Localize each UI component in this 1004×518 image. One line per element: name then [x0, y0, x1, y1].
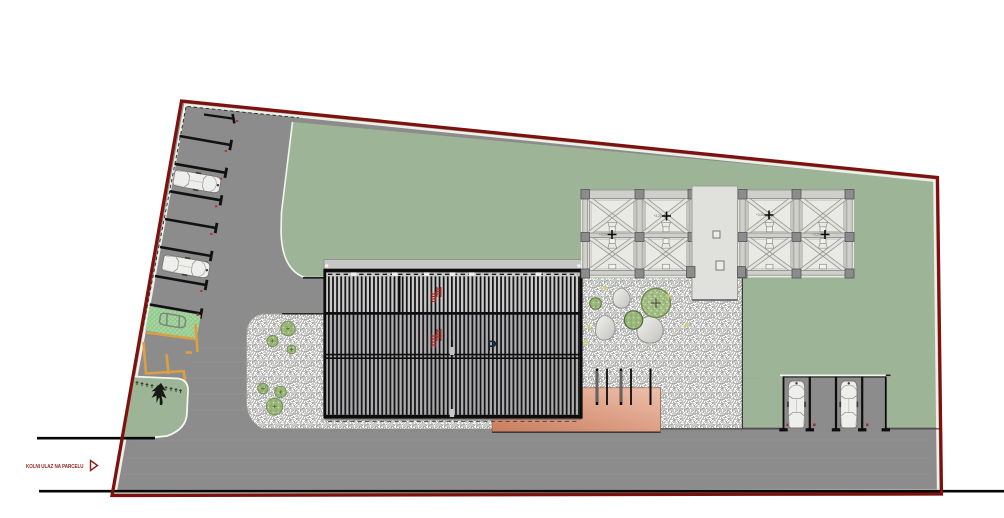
- svg-text:+3,20: +3,20: [599, 233, 607, 237]
- svg-text:KOLNI ULAZ NA PARCELU: KOLNI ULAZ NA PARCELU: [26, 464, 84, 470]
- svg-text:+3,20: +3,20: [756, 213, 764, 217]
- svg-text:+3,20: +3,20: [654, 214, 662, 218]
- svg-text:+3,20: +3,20: [812, 233, 820, 237]
- svg-text:P: P: [487, 339, 497, 355]
